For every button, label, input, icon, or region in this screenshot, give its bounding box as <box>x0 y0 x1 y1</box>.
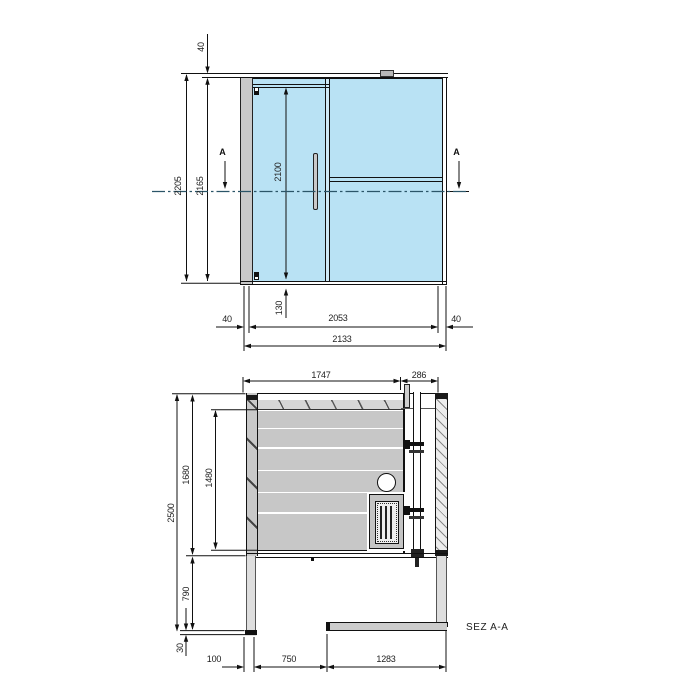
plan-lower-right-strip <box>436 556 447 622</box>
section-marker-left: A <box>219 147 226 157</box>
plan-front-tick <box>311 557 314 561</box>
plan-door-top-stub <box>404 384 410 408</box>
dim-door-height: 2100 <box>273 162 283 181</box>
dim-seg-opening: 750 <box>282 654 296 664</box>
plan-door-hinge-upper-bar2 <box>409 450 424 453</box>
dim-cabin-inner-depth: 1480 <box>204 468 214 487</box>
plan-band-hatch <box>258 400 403 410</box>
plan-door-hinge-lower-bar1 <box>409 508 424 512</box>
dim-base-depth: 30 <box>175 643 185 653</box>
plan-bottom-wall <box>326 622 447 632</box>
dim-cabin-depth: 1680 <box>181 465 191 484</box>
transom-line1 <box>329 177 442 178</box>
dim-back-width: 1747 <box>311 370 330 380</box>
dim-total-depth: 2500 <box>166 503 176 522</box>
plan-right-post <box>435 393 448 557</box>
plan-door-bottom-pin <box>415 557 419 567</box>
plan-band-1 <box>258 411 403 428</box>
dim-seg-wall: 1283 <box>376 654 395 664</box>
dim-total-height: 2205 <box>173 176 183 195</box>
dim-clear-height: 2165 <box>195 176 205 195</box>
door-top-rail-line2 <box>253 87 330 88</box>
plan-lower-left-cap <box>245 630 257 635</box>
panel-divider-line1 <box>325 78 326 281</box>
plan-left-post <box>246 393 259 557</box>
floor-line <box>240 284 447 285</box>
plan-left-post-cap <box>246 395 259 400</box>
dim-total-width: 2133 <box>332 334 351 344</box>
plan-bottom-wall-cap <box>326 622 330 632</box>
dim-roof-offset: 40 <box>196 42 206 52</box>
section-marker-right: A <box>453 147 460 157</box>
plan-door-hinge-upper-bar1 <box>409 442 424 446</box>
transom-line2 <box>329 181 442 182</box>
plan-cabin-inner-front-line <box>258 550 403 551</box>
plan-band-2 <box>258 429 403 447</box>
plan-right-post-top-cap <box>435 393 448 399</box>
plan-band-3 <box>258 449 403 470</box>
plan-door-leaf <box>413 392 421 556</box>
dim-door-width: 286 <box>412 370 426 380</box>
dim-base-height: 130 <box>274 301 284 315</box>
roof-line-top <box>181 73 448 74</box>
glass-bottom-edge <box>240 281 447 282</box>
fixed-glass-panel <box>329 79 442 281</box>
dim-seg-left: 100 <box>207 654 221 664</box>
left-wall-profile <box>240 78 253 285</box>
section-label: SEZ A-A <box>466 622 509 633</box>
door-hinge-bottom-pin <box>255 273 258 277</box>
roof-vent-tab <box>380 70 394 78</box>
glass-top-edge <box>253 78 442 79</box>
plan-front-line1 <box>246 553 448 554</box>
dim-front-depth: 790 <box>181 587 191 601</box>
door-top-rail-line1 <box>253 84 330 85</box>
dim-right-profile: 40 <box>451 314 461 324</box>
dim-left-profile: 40 <box>222 314 232 324</box>
dim-glass-width: 2053 <box>328 313 347 323</box>
plan-door-hinge-lower-bar2 <box>409 516 424 519</box>
door-handle <box>313 153 318 211</box>
plan-lower-left-strip <box>246 556 256 631</box>
plan-heater-elements <box>380 506 394 539</box>
door-hinge-top-pin <box>255 91 258 95</box>
right-frame-profile <box>442 78 448 284</box>
technical-drawing-canvas: 40 2205 2165 2100 130 A A 40 2053 40 213… <box>0 0 700 700</box>
plan-lamp-circle <box>377 473 396 492</box>
plan-front-line2 <box>246 557 448 558</box>
panel-divider-line2 <box>329 78 330 281</box>
